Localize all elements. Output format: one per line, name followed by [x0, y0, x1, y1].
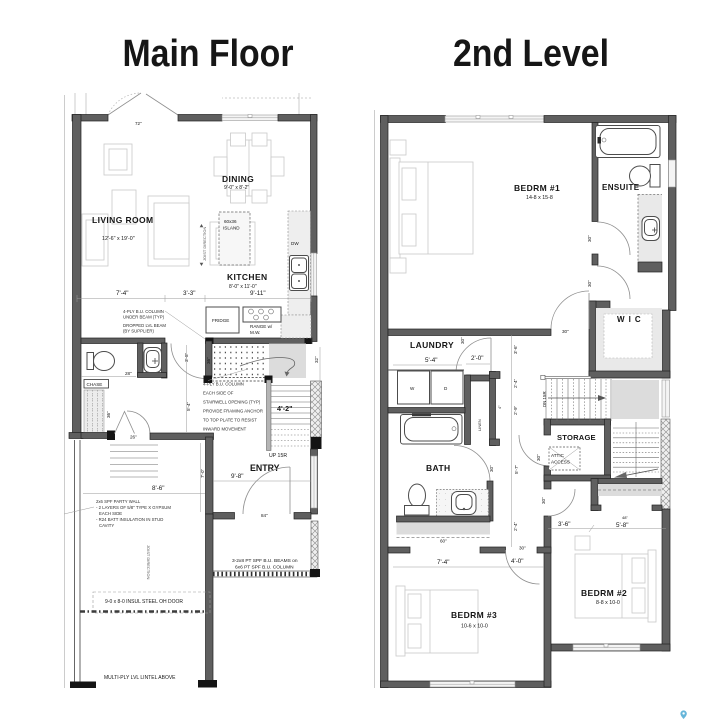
svg-text:ATTIC: ATTIC [551, 453, 565, 458]
svg-text:30": 30" [587, 235, 592, 242]
svg-text:W I C: W I C [617, 315, 642, 324]
svg-text:30": 30" [562, 329, 569, 334]
svg-text:2x6 SPF PARTY WALL: 2x6 SPF PARTY WALL [96, 499, 141, 504]
svg-text:30": 30" [460, 337, 465, 344]
svg-text:36": 36" [106, 411, 111, 418]
svg-text:2'-4": 2'-4" [513, 378, 518, 388]
svg-text:DROPPED LVL BEAM: DROPPED LVL BEAM [123, 323, 166, 328]
svg-text:BEDRM #2: BEDRM #2 [581, 588, 627, 598]
svg-text:28": 28" [125, 371, 132, 376]
svg-text:2'-0": 2'-0" [471, 355, 484, 362]
svg-text:8-8 x 10-0: 8-8 x 10-0 [596, 600, 620, 606]
svg-text:ENSUITE: ENSUITE [602, 183, 640, 192]
svg-text:84": 84" [261, 513, 268, 518]
svg-text:32": 32" [314, 356, 319, 363]
svg-text:DW: DW [291, 241, 299, 246]
svg-text:CHASE: CHASE [87, 382, 103, 387]
svg-text:UNDER BEAM (TYP): UNDER BEAM (TYP) [123, 315, 165, 320]
svg-text:30": 30" [536, 454, 541, 461]
svg-text:(BY SUPPLIER): (BY SUPPLIER) [123, 329, 155, 334]
svg-text:12'-6" x 19'-0": 12'-6" x 19'-0" [102, 236, 135, 242]
svg-text:2'-4": 2'-4" [513, 521, 518, 531]
svg-text:ACCESS: ACCESS [551, 460, 570, 465]
svg-text:W: W [410, 386, 415, 391]
svg-text:INWARD MOVEMENT: INWARD MOVEMENT [203, 427, 247, 432]
svg-text:3'-6": 3'-6" [558, 521, 571, 528]
svg-text:PROVIDE FRAMING ANCHOR: PROVIDE FRAMING ANCHOR [203, 409, 263, 414]
svg-text:TO TOP PLATE TO RESIST: TO TOP PLATE TO RESIST [203, 418, 257, 423]
svg-text:3-2x8 PT SPF B.U. BEAMS on: 3-2x8 PT SPF B.U. BEAMS on [232, 558, 298, 564]
svg-text:BEDRM #3: BEDRM #3 [451, 610, 497, 620]
svg-text:60x36: 60x36 [224, 219, 237, 224]
svg-text:9'-11": 9'-11" [250, 290, 266, 297]
svg-text:30": 30" [587, 280, 592, 287]
svg-text:ENTRY: ENTRY [250, 463, 280, 473]
svg-text:LINEN: LINEN [477, 419, 482, 431]
svg-text:UP 15R: UP 15R [269, 453, 287, 459]
svg-text:EACH SIDE: EACH SIDE [99, 511, 122, 516]
svg-text:5'-8": 5'-8" [616, 522, 629, 529]
svg-text:- R24 BATT INSULATION IN STUD: - R24 BATT INSULATION IN STUD [96, 517, 163, 522]
svg-text:30": 30" [519, 546, 526, 551]
svg-text:JOIST DIRECTION: JOIST DIRECTION [146, 545, 151, 579]
svg-text:RANGE w/: RANGE w/ [250, 324, 273, 329]
svg-text:9-0 x 8-0 INSUL STEEL OH DOOR: 9-0 x 8-0 INSUL STEEL OH DOOR [105, 599, 183, 605]
svg-text:5'-7": 5'-7" [514, 464, 519, 474]
svg-text:FRIDGE: FRIDGE [212, 318, 229, 323]
svg-text:STORAGE: STORAGE [557, 433, 596, 442]
svg-text:LIVING ROOM: LIVING ROOM [92, 215, 154, 225]
svg-text:72": 72" [135, 121, 142, 126]
svg-text:30": 30" [541, 497, 546, 504]
svg-text:EACH SIDE OF: EACH SIDE OF [203, 391, 234, 396]
svg-text:KITCHEN: KITCHEN [227, 272, 268, 282]
svg-text:10-6 x 10-0: 10-6 x 10-0 [461, 624, 488, 630]
svg-text:ISLAND: ISLAND [223, 226, 240, 231]
svg-text:7'-4": 7'-4" [437, 559, 450, 566]
svg-text:9'-0" x 8'-2": 9'-0" x 8'-2" [224, 185, 249, 191]
svg-text:LAUNDRY: LAUNDRY [410, 340, 454, 350]
svg-text:4'-2": 4'-2" [277, 404, 293, 413]
svg-text:CAVITY: CAVITY [99, 523, 114, 528]
svg-text:MULTI-PLY LVL LINTEL ABOVE: MULTI-PLY LVL LINTEL ABOVE [104, 675, 176, 681]
svg-text:2nd Level: 2nd Level [453, 33, 609, 75]
svg-text:STAIRWELL OPENING (TYP): STAIRWELL OPENING (TYP) [203, 400, 261, 405]
svg-text:26": 26" [130, 435, 137, 440]
svg-text:5'-4": 5'-4" [425, 357, 438, 364]
svg-text:4-PLY B.U. COLUMN: 4-PLY B.U. COLUMN [203, 382, 244, 387]
svg-text:3'-3": 3'-3" [183, 290, 196, 297]
svg-text:60": 60" [440, 539, 447, 544]
svg-text:BATH: BATH [426, 463, 451, 473]
svg-text:14-8 x 15-8: 14-8 x 15-8 [526, 195, 553, 201]
svg-text:M.W.: M.W. [250, 330, 260, 335]
svg-text:7'-4": 7'-4" [116, 290, 129, 297]
svg-text:JOIST DIRECTION: JOIST DIRECTION [202, 227, 207, 261]
svg-text:8'-6": 8'-6" [152, 485, 165, 492]
svg-text:- 2 LAYERS OF 5/8" TYPE X GYPS: - 2 LAYERS OF 5/8" TYPE X GYPSUM [96, 505, 171, 510]
svg-text:4-PLY B.U. COLUMN: 4-PLY B.U. COLUMN [123, 309, 164, 314]
svg-text:36": 36" [206, 357, 211, 364]
svg-text:30": 30" [489, 465, 494, 472]
svg-text:DINING: DINING [222, 174, 254, 184]
svg-text:9'-8": 9'-8" [231, 473, 244, 480]
svg-text:48": 48" [622, 515, 628, 520]
svg-text:4'-0": 4'-0" [511, 558, 524, 565]
svg-text:2'-9": 2'-9" [513, 405, 518, 415]
svg-text:3'-6": 3'-6" [513, 344, 518, 354]
svg-text:Main Floor: Main Floor [123, 33, 294, 75]
svg-text:DN 15R: DN 15R [542, 391, 547, 407]
svg-text:BEDRM #1: BEDRM #1 [514, 183, 560, 193]
svg-text:6x6 PT SPF B.U. COLUMN: 6x6 PT SPF B.U. COLUMN [235, 565, 294, 571]
